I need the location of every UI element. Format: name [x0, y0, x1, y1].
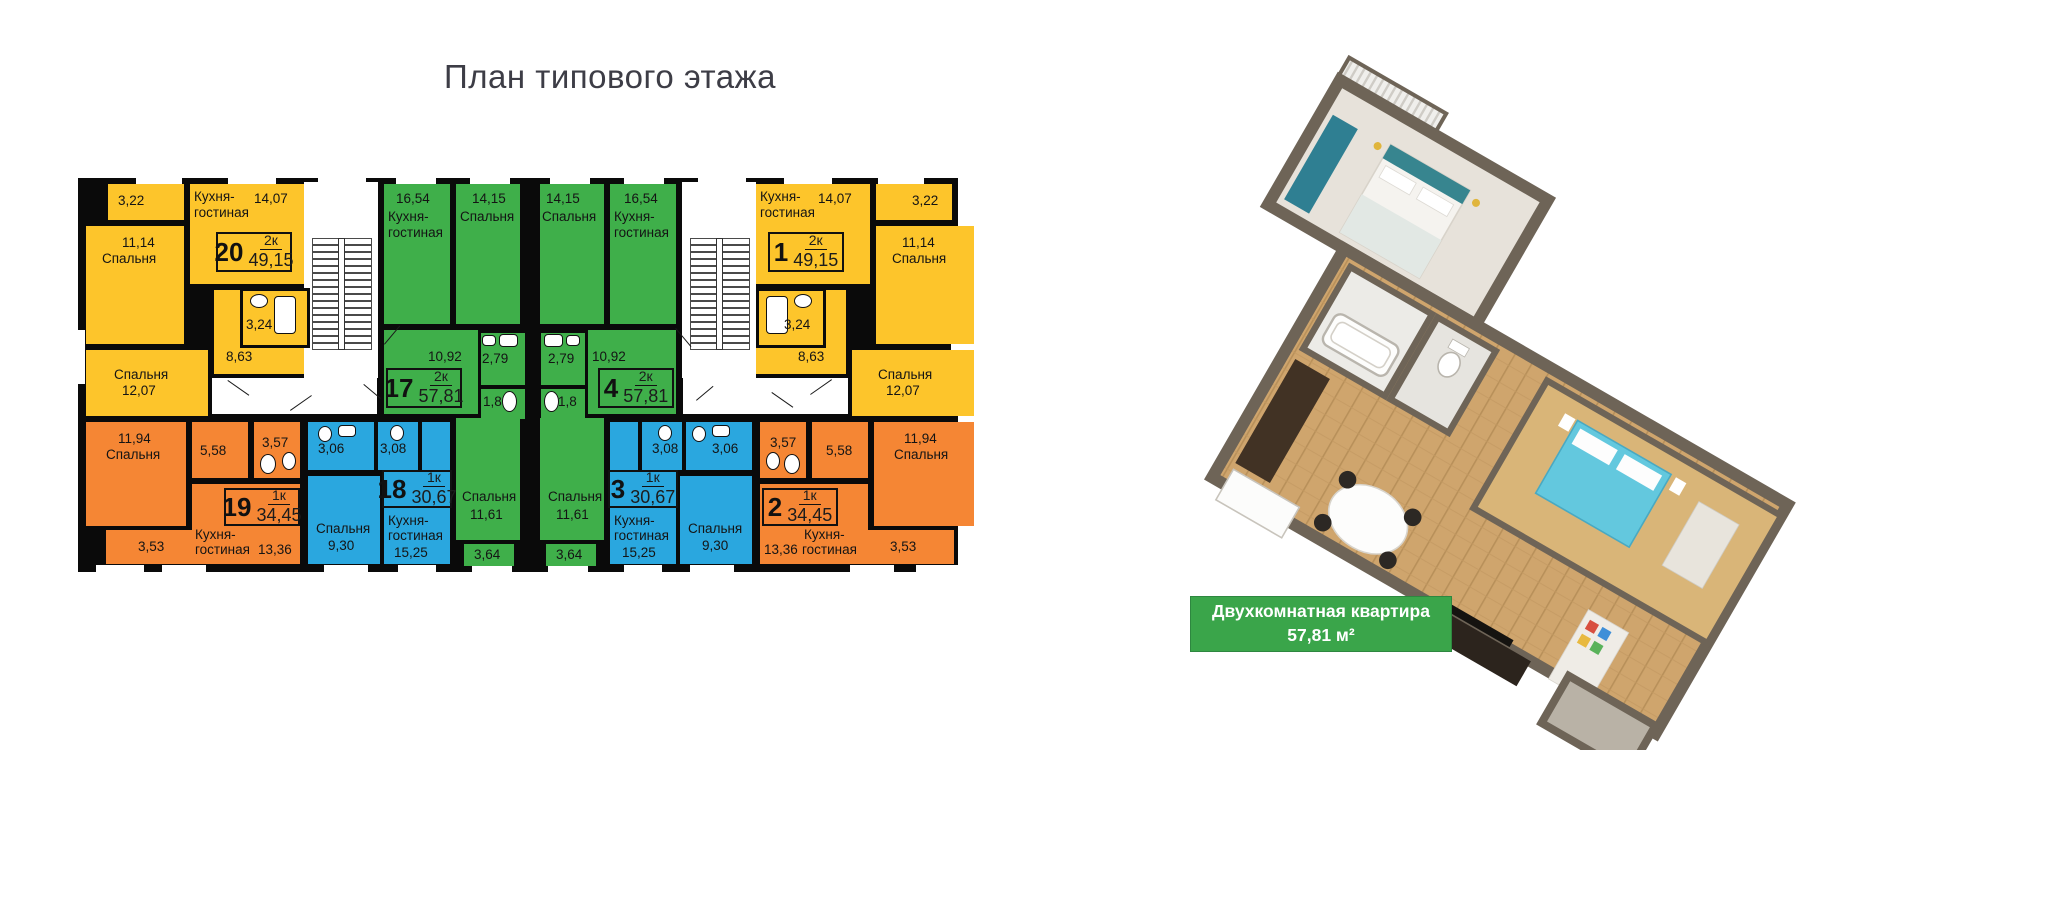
window-gap	[78, 330, 85, 384]
room-label: Спальня	[542, 210, 596, 224]
window-gap	[916, 565, 964, 572]
room-label: 3,24	[246, 318, 272, 332]
room-label: гостиная	[195, 543, 250, 557]
room-label: 13,36	[764, 543, 798, 557]
room-label: 3,64	[556, 548, 582, 562]
room-label: Спальня	[462, 490, 516, 504]
room-label: 14,07	[254, 192, 288, 206]
apartment-19-badge: 19 1к 34,45	[224, 488, 300, 526]
room-label: 3,08	[652, 442, 678, 456]
apartment-number: 3	[611, 474, 625, 505]
room-label: гостиная	[194, 206, 249, 220]
stair-rail	[716, 238, 723, 350]
room-label: 3,08	[380, 442, 406, 456]
room-label: 3,06	[318, 442, 344, 456]
sink	[482, 335, 496, 346]
apartment-20-badge: 20 2к 49,15	[216, 232, 292, 272]
stair-rail	[338, 238, 345, 350]
apartment-number: 4	[604, 373, 618, 404]
apartment-type: 2к	[635, 368, 657, 386]
room-label: гостиная	[614, 226, 669, 240]
room-label: 10,92	[428, 350, 462, 364]
stair-flight	[344, 238, 372, 350]
window-gap	[472, 565, 512, 572]
room-label: 11,61	[556, 508, 589, 522]
window-gap	[548, 565, 588, 572]
room-label: 12,07	[122, 384, 156, 398]
apartment-number: 18	[378, 474, 407, 505]
room-label: Спальня	[114, 368, 168, 382]
room-label: гостиная	[388, 529, 443, 543]
sink	[282, 452, 296, 470]
room-label: 5,58	[200, 444, 226, 458]
apartment-area: 49,15	[793, 250, 838, 272]
toilet	[390, 425, 404, 441]
room-label: Спальня	[878, 368, 932, 382]
room-label: 13,36	[258, 543, 292, 557]
room-label: 15,25	[622, 546, 656, 560]
room-label: 2,79	[548, 352, 574, 366]
stairwell-right	[682, 182, 756, 378]
room-label: 9,30	[328, 539, 354, 553]
room-label: Кухня-	[614, 514, 655, 528]
room-label: 16,54	[396, 192, 430, 206]
room-label: 12,07	[886, 384, 920, 398]
apartment-info-label: Двухкомнатная квартира 57,81 м²	[1190, 596, 1452, 652]
window-gap	[324, 565, 368, 572]
apartment-1-badge: 1 2к 49,15	[768, 232, 844, 272]
room-label: Спальня	[548, 490, 602, 504]
apartment-area: 30,67	[411, 487, 456, 509]
apartment-type: 1к	[799, 487, 821, 505]
room-label: 3,53	[138, 540, 164, 554]
apartment-area: 34,45	[787, 505, 832, 527]
room-label: 11,94	[904, 432, 937, 446]
window-gap	[398, 565, 436, 572]
room-label: 11,14	[122, 236, 155, 250]
room-label: 14,07	[818, 192, 852, 206]
room-label: Спальня	[106, 448, 160, 462]
info-label-area: 57,81 м²	[1191, 624, 1451, 648]
room-label: Спальня	[894, 448, 948, 462]
sink	[712, 425, 730, 437]
sink	[250, 294, 268, 308]
apartment-area: 30,67	[630, 487, 675, 509]
stair-flight	[722, 238, 750, 350]
sink	[566, 335, 580, 346]
room-label: 9,30	[702, 539, 728, 553]
apartment-4-badge: 4 2к 57,81	[598, 368, 674, 408]
apartment-number: 19	[223, 492, 252, 523]
room-label: 3,64	[474, 548, 500, 562]
window-gap	[624, 565, 662, 572]
room-label: 14,15	[546, 192, 580, 206]
apartment-2-badge: 2 1к 34,45	[762, 488, 838, 526]
room-label: Спальня	[316, 522, 370, 536]
render-main-area	[1188, 249, 1787, 750]
apt18-entry	[422, 422, 450, 470]
room-label: 14,15	[472, 192, 506, 206]
sink	[338, 425, 356, 437]
room-label: 3,24	[784, 318, 810, 332]
apartment-area: 57,81	[623, 386, 668, 408]
room-label: 5,58	[826, 444, 852, 458]
room-label: 3,22	[912, 194, 938, 208]
window-gap	[850, 565, 894, 572]
sink	[794, 294, 812, 308]
room-label: гостиная	[614, 529, 669, 543]
window-gap	[162, 565, 206, 572]
apartment-number: 1	[774, 237, 788, 268]
toilet	[260, 454, 276, 474]
room-label: 2,79	[482, 352, 508, 366]
apartment-type: 1к	[642, 469, 664, 487]
window-gap	[96, 565, 144, 572]
room-label: 3,57	[770, 436, 796, 450]
stairwell-left	[304, 182, 378, 378]
toilet	[502, 391, 517, 412]
apartment-17-badge: 17 2к 57,81	[386, 368, 462, 408]
room-label: 1,8	[558, 395, 577, 409]
room-label: 10,92	[592, 350, 626, 364]
room-label: Кухня-	[760, 190, 801, 204]
room-label: Кухня-	[614, 210, 655, 224]
room-label: гостиная	[802, 543, 857, 557]
room-label: Кухня-	[388, 514, 429, 528]
stair-flight	[690, 238, 718, 350]
room-label: Спальня	[688, 522, 742, 536]
washer	[499, 334, 518, 347]
info-label-title: Двухкомнатная квартира	[1191, 600, 1451, 624]
room-label: Кухня-	[195, 528, 236, 542]
room-label: 11,61	[470, 508, 503, 522]
room-label: гостиная	[388, 226, 443, 240]
toilet	[658, 425, 672, 441]
room-label: 11,94	[118, 432, 151, 446]
room-label: Кухня-	[804, 528, 845, 542]
room-label: 3,22	[118, 194, 144, 208]
room-label: гостиная	[760, 206, 815, 220]
apartment-area: 34,45	[256, 505, 301, 527]
room-label: Спальня	[892, 252, 946, 266]
room-label: 11,14	[902, 236, 935, 250]
apartment-type: 1к	[268, 487, 290, 505]
washer	[544, 334, 563, 347]
apartment-3-badge: 3 1к 30,67	[608, 470, 678, 508]
room-label: 3,53	[890, 540, 916, 554]
room-label: Кухня-	[388, 210, 429, 224]
page: { "page": { "title": "План типового этаж…	[0, 0, 2046, 900]
room-label: Спальня	[102, 252, 156, 266]
apartment-type: 2к	[430, 368, 452, 386]
sink	[766, 452, 780, 470]
apt3-entry	[610, 422, 638, 470]
apartment-area: 49,15	[248, 250, 293, 272]
apartment-type: 2к	[260, 232, 282, 250]
room-label: 15,25	[394, 546, 428, 560]
room-label: 1,8	[483, 395, 502, 409]
corridor-left	[212, 378, 377, 414]
floor-plan: 3,22 Кухня- гостиная 14,07 11,14 Спальня…	[78, 178, 958, 572]
apartment-18-badge: 18 1к 30,67	[382, 470, 452, 508]
toilet	[544, 391, 559, 412]
apartment-type: 2к	[805, 232, 827, 250]
room-label: 3,57	[262, 436, 288, 450]
bathtub	[274, 296, 296, 334]
room-label: 8,63	[798, 350, 824, 364]
apartment-area: 57,81	[418, 386, 463, 408]
apartment-number: 17	[385, 373, 414, 404]
apartment-number: 2	[768, 492, 782, 523]
apt2-wc	[760, 422, 806, 478]
toilet	[318, 426, 332, 442]
toilet	[784, 454, 800, 474]
apartment-type: 1к	[423, 469, 445, 487]
room-label: 3,06	[712, 442, 738, 456]
room-label: 8,63	[226, 350, 252, 364]
apartment-number: 20	[215, 237, 244, 268]
window-gap	[690, 565, 734, 572]
stair-flight	[312, 238, 340, 350]
page-title: План типового этажа	[360, 58, 860, 96]
room-label: Спальня	[460, 210, 514, 224]
room-label: 16,54	[624, 192, 658, 206]
toilet	[692, 426, 706, 442]
room-label: Кухня-	[194, 190, 235, 204]
